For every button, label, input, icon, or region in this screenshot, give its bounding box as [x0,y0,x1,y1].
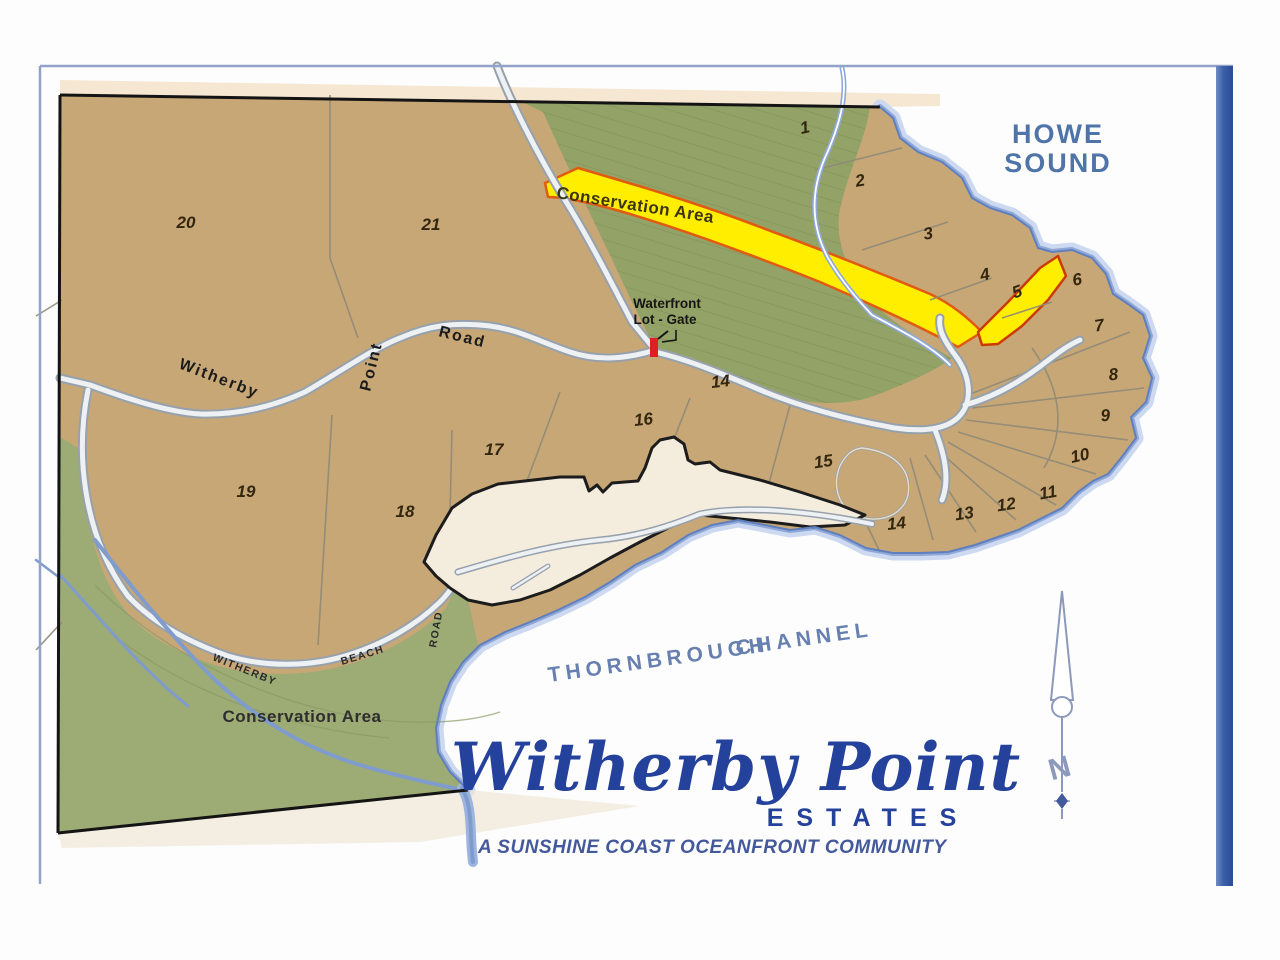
waterfront-gate-label-1: Waterfront [633,296,701,311]
gate-red-bar [650,338,658,357]
lot-label-15-16: 15 [813,451,835,473]
lot-label-13-14: 13 [954,503,976,525]
lot-label-12-13: 12 [996,494,1018,516]
estate-title-estates: ESTATES [767,804,970,832]
waterfront-gate-label-2: Lot - Gate [634,312,697,327]
frame-right-bar [1216,66,1233,886]
lot-label-18-20: 18 [396,502,415,521]
lot-label-14-17: 14 [710,371,731,392]
lot-label-14-15: 14 [886,513,907,534]
conservation-area-bottom-label: Conservation Area [222,707,381,726]
title-block: Witherby Point ESTATES A SUNSHINE COAST … [451,728,1021,858]
lot-label-19-21: 19 [237,482,256,501]
estate-tagline: A SUNSHINE COAST OCEANFRONT COMMUNITY [477,837,948,858]
lot-label-21-1: 21 [421,215,441,234]
lot-label-16-18: 16 [633,409,654,430]
lot-label-11-12: 11 [1038,482,1059,504]
estate-title-script: Witherby Point [451,728,1021,806]
howe-sound-label-2: SOUND [1004,148,1112,178]
north-arrow-compass: N [1045,591,1074,819]
map-svg: HOWE SOUND THORNBROUGH CHANNEL Conservat… [0,0,1280,960]
lot-label-17-19: 17 [485,440,505,459]
channel-label: CHANNEL [734,618,874,660]
north-n-label: N [1045,750,1074,787]
howe-sound-label-1: HOWE [1012,119,1104,149]
lot-label-20-0: 20 [176,213,196,232]
witherby-point-estates-map-page: HOWE SOUND THORNBROUGH CHANNEL Conservat… [0,0,1280,960]
